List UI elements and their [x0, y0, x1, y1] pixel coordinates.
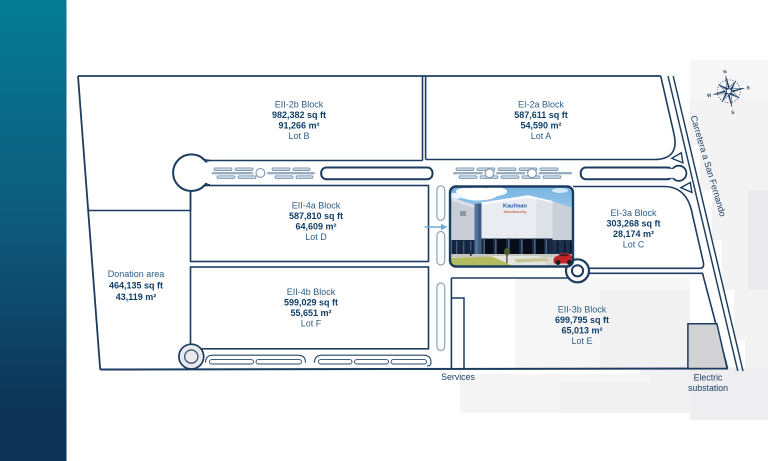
svg-text:303,268 sq ft: 303,268 sq ft [606, 219, 660, 229]
svg-text:EI-3a Block: EI-3a Block [610, 208, 657, 218]
svg-text:Services: Services [441, 372, 475, 382]
svg-text:587,611 sq ft: 587,611 sq ft [514, 110, 568, 120]
svg-text:Lot A: Lot A [531, 131, 552, 141]
svg-text:Lot B: Lot B [288, 131, 309, 141]
svg-text:Lot D: Lot D [305, 232, 327, 242]
svg-text:28,174 m²: 28,174 m² [613, 229, 654, 239]
svg-text:982,382 sq ft: 982,382 sq ft [272, 110, 326, 120]
svg-text:Lot E: Lot E [571, 336, 592, 346]
svg-text:587,810 sq ft: 587,810 sq ft [289, 211, 343, 221]
svg-text:Kaufman: Kaufman [503, 204, 528, 210]
svg-text:54,590 m²: 54,590 m² [520, 121, 561, 131]
svg-text:Donation area: Donation area [108, 269, 165, 279]
svg-text:EII-4b Block: EII-4b Block [287, 287, 336, 297]
svg-text:EI-2a Block: EI-2a Block [518, 100, 565, 110]
svg-text:65,013 m²: 65,013 m² [561, 326, 602, 336]
svg-text:699,795 sq ft: 699,795 sq ft [555, 315, 609, 325]
svg-text:91,266 m²: 91,266 m² [278, 121, 319, 131]
svg-text:Lot C: Lot C [623, 240, 645, 250]
svg-text:599,029 sq ft: 599,029 sq ft [284, 298, 338, 308]
svg-text:464,135 sq ft: 464,135 sq ft [109, 281, 163, 291]
svg-text:EII-3b Block: EII-3b Block [558, 305, 607, 315]
svg-text:Manufacturing: Manufacturing [504, 210, 527, 214]
svg-text:43,119 m²: 43,119 m² [116, 292, 157, 302]
svg-text:EII-2b Block: EII-2b Block [275, 100, 324, 110]
svg-text:55,651 m²: 55,651 m² [290, 308, 331, 318]
svg-text:EII-4a Block: EII-4a Block [292, 201, 341, 211]
svg-text:substation: substation [688, 383, 728, 393]
svg-text:Lot F: Lot F [301, 319, 322, 329]
svg-text:Electric: Electric [694, 373, 723, 383]
svg-text:64,609 m²: 64,609 m² [295, 222, 336, 232]
